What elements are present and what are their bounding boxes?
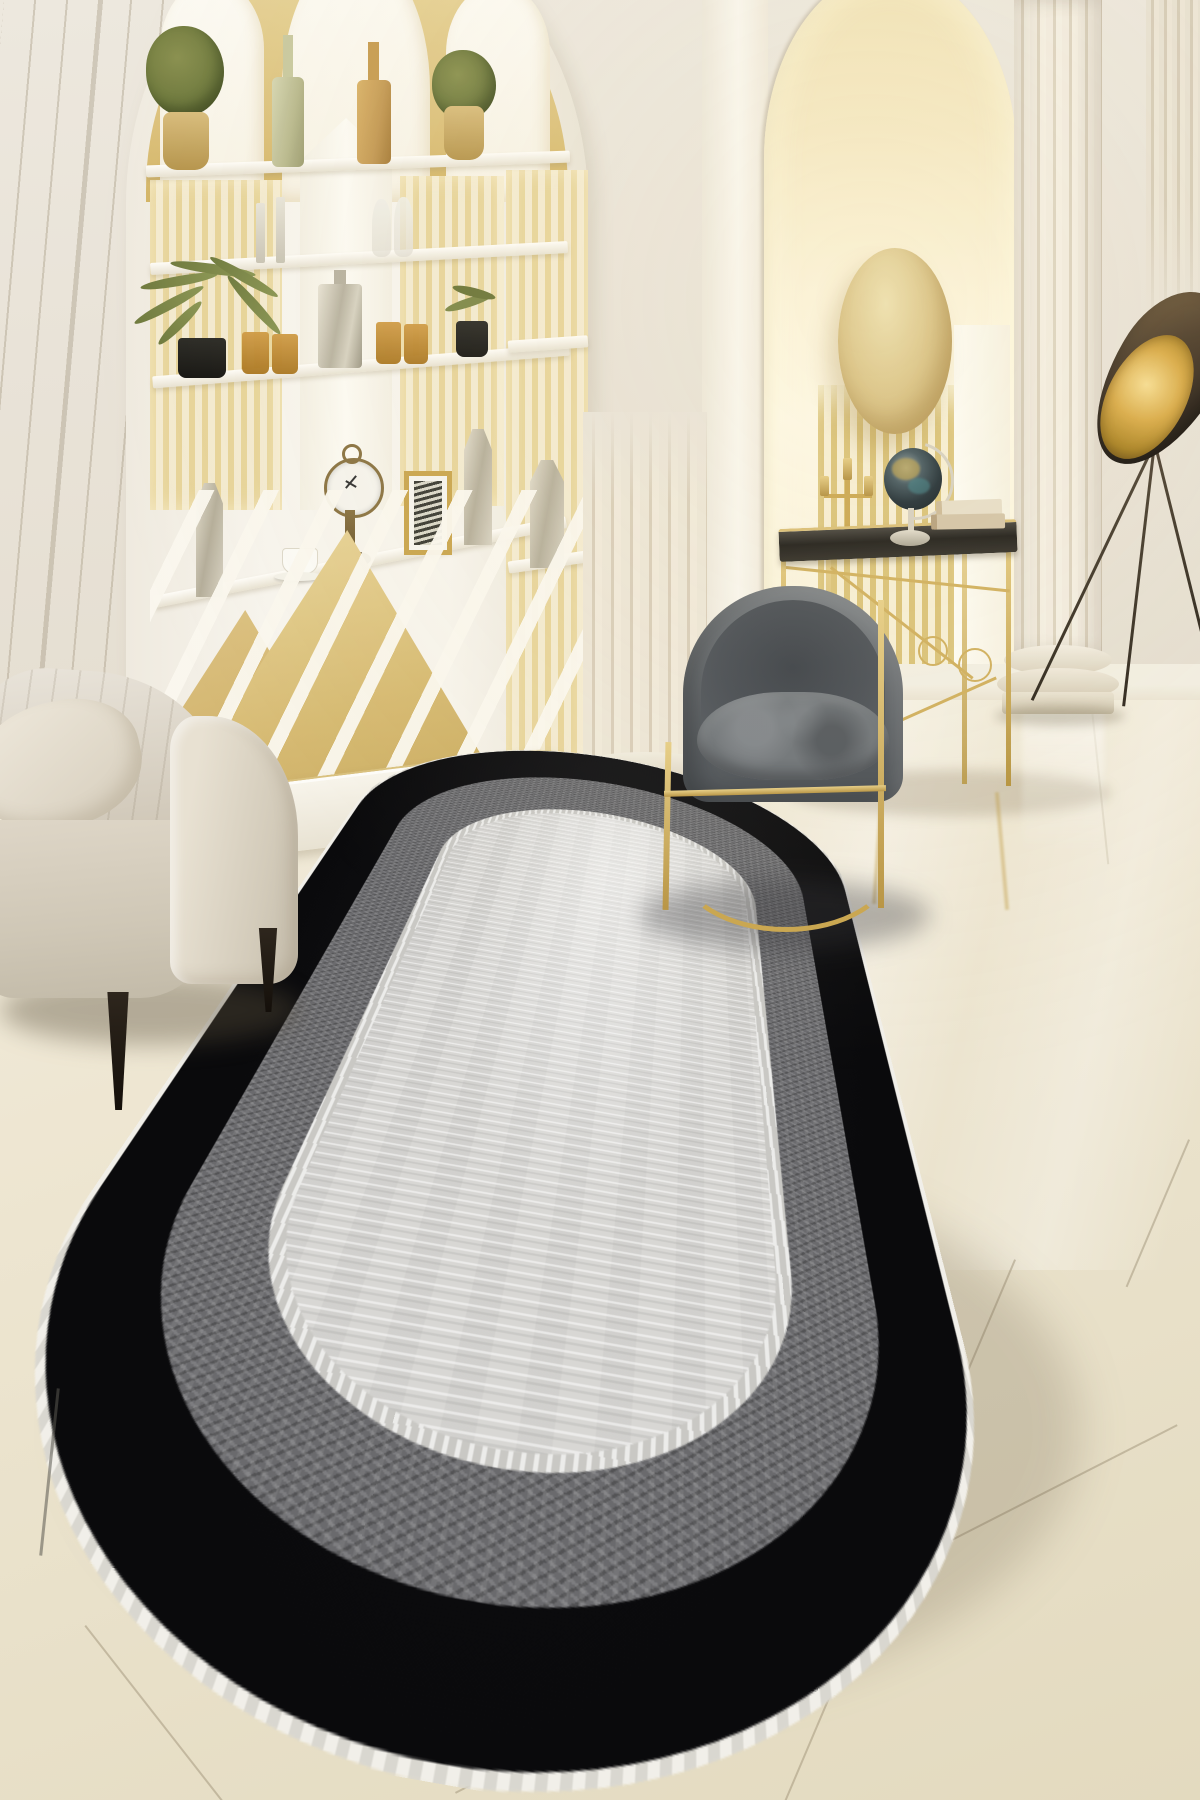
living-room-scene: [0, 0, 1200, 1800]
tub-chair-cushion: [697, 692, 889, 780]
tub-chair-gold-leg: [663, 742, 672, 910]
tub-chair-curved-stretcher: [678, 800, 894, 932]
gray-tub-chair: [0, 0, 1200, 1800]
